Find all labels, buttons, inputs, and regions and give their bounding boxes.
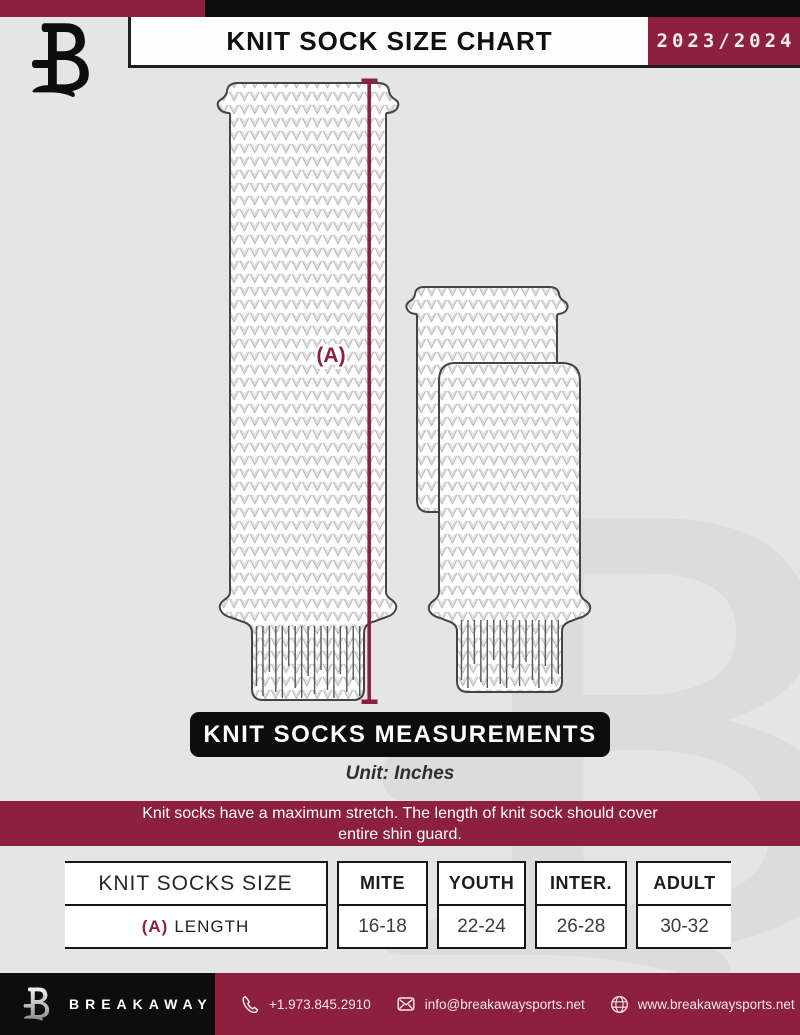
table-header-mite: MITE [337,861,428,906]
logo-b-shape [32,23,89,97]
table-header-row: KNIT SOCKS SIZE MITE YOUTH INTER. ADULT [65,861,735,906]
row-label-text: LENGTH [174,917,249,937]
email-icon [395,994,417,1014]
table-row-length: (A) LENGTH 16-18 22-24 26-28 30-32 [65,906,735,949]
page-title: KNIT SOCK SIZE CHART [226,26,552,57]
top-strip-black [205,0,800,17]
value-youth: 22-24 [437,906,526,949]
notice-line-1: Knit socks have a maximum stretch. The l… [0,803,800,824]
breakaway-logo [24,20,104,100]
contact-phone: +1.973.845.2910 [240,994,371,1015]
season-badge: 2023/2024 [648,17,800,65]
phone-text: +1.973.845.2910 [269,997,371,1012]
row-label-length: (A) LENGTH [65,906,328,949]
measurement-label: (A) [316,344,345,367]
footer-contact-block: +1.973.845.2910 info@breakawaysports.net… [215,973,800,1035]
measurements-banner: KNIT SOCKS MEASUREMENTS [190,712,610,757]
footer-brand-name: BREAKAWAY [69,996,213,1012]
size-table: KNIT SOCKS SIZE MITE YOUTH INTER. ADULT … [65,861,735,949]
phone-icon [240,994,261,1015]
table-header-size: KNIT SOCKS SIZE [65,861,328,906]
footer-logo [20,984,56,1024]
notice-line-2: entire shin guard. [0,824,800,845]
top-strip-maroon [0,0,205,17]
contact-email: info@breakawaysports.net [395,994,585,1014]
footer-brand-block: BREAKAWAY [0,973,215,1035]
globe-icon [609,994,630,1015]
sock-small-front [429,363,590,692]
unit-label: Unit: Inches [0,763,800,785]
header-bar: KNIT SOCK SIZE CHART 2023/2024 [128,17,800,68]
footer: BREAKAWAY +1.973.845.2910 info@breakaway… [0,973,800,1035]
table-header-youth: YOUTH [437,861,526,906]
sock-illustration: (A) [0,0,800,720]
contact-website: www.breakawaysports.net [609,994,795,1015]
knit-sock-size-chart-page: { "header": { "title": "KNIT SOCK SIZE C… [0,0,800,1035]
table-header-inter: INTER. [535,861,627,906]
value-mite: 16-18 [337,906,428,949]
row-label-prefix: (A) [142,917,169,937]
website-text: www.breakawaysports.net [638,997,795,1012]
value-inter: 26-28 [535,906,627,949]
email-text: info@breakawaysports.net [425,997,585,1012]
value-adult: 30-32 [636,906,731,949]
table-header-adult: ADULT [636,861,731,906]
stretch-notice: Knit socks have a maximum stretch. The l… [0,801,800,846]
sock-large [218,83,399,700]
title-area: KNIT SOCK SIZE CHART [131,17,648,65]
